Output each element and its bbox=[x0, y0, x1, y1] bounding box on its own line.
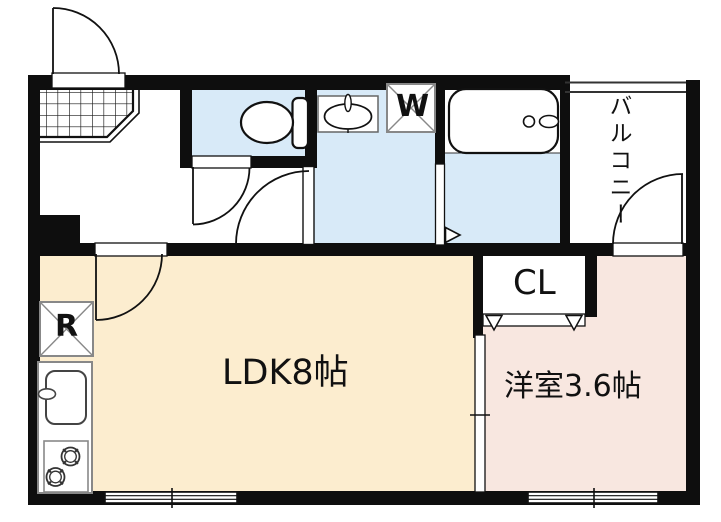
wall-closet-left bbox=[473, 243, 483, 338]
wall-bath-balcony bbox=[560, 75, 570, 256]
wall-entry-toilet bbox=[180, 75, 192, 168]
floor-plan-svg bbox=[0, 0, 721, 522]
balcony-label: バルコニー bbox=[606, 94, 629, 229]
entrance-opening bbox=[52, 73, 125, 88]
refrigerator-label: R bbox=[55, 312, 78, 342]
floor-plan: LDK8帖 洋室3.6帖 CL W R バルコニー bbox=[0, 0, 721, 522]
washroom-door-panel bbox=[303, 167, 314, 245]
burner-2 bbox=[47, 468, 65, 486]
entrance-tile bbox=[38, 86, 139, 142]
burner-1 bbox=[62, 448, 80, 466]
entrance-door-swing bbox=[53, 8, 119, 74]
toilet-door-opening bbox=[192, 156, 251, 168]
wall-right bbox=[686, 80, 700, 505]
washer-label: W bbox=[396, 92, 429, 122]
balcony-railing bbox=[565, 83, 686, 93]
ldk-bedroom-sliding-door bbox=[475, 335, 485, 492]
balcony-door-opening bbox=[613, 243, 683, 256]
ldk-room-label: LDK8帖 bbox=[222, 356, 349, 391]
bathroom-sliding-door bbox=[436, 164, 445, 245]
closet-label: CL bbox=[513, 266, 556, 300]
wall-block-left bbox=[28, 215, 80, 245]
stove bbox=[44, 441, 88, 492]
bathtub bbox=[449, 89, 559, 153]
kitchen-faucet bbox=[39, 389, 56, 399]
wall-washroom-bath bbox=[435, 75, 445, 167]
bedroom-room-label: 洋室3.6帖 bbox=[504, 372, 642, 402]
ldk-door-opening bbox=[95, 243, 167, 256]
wall-closet-right bbox=[585, 243, 597, 317]
washbasin bbox=[318, 95, 378, 134]
